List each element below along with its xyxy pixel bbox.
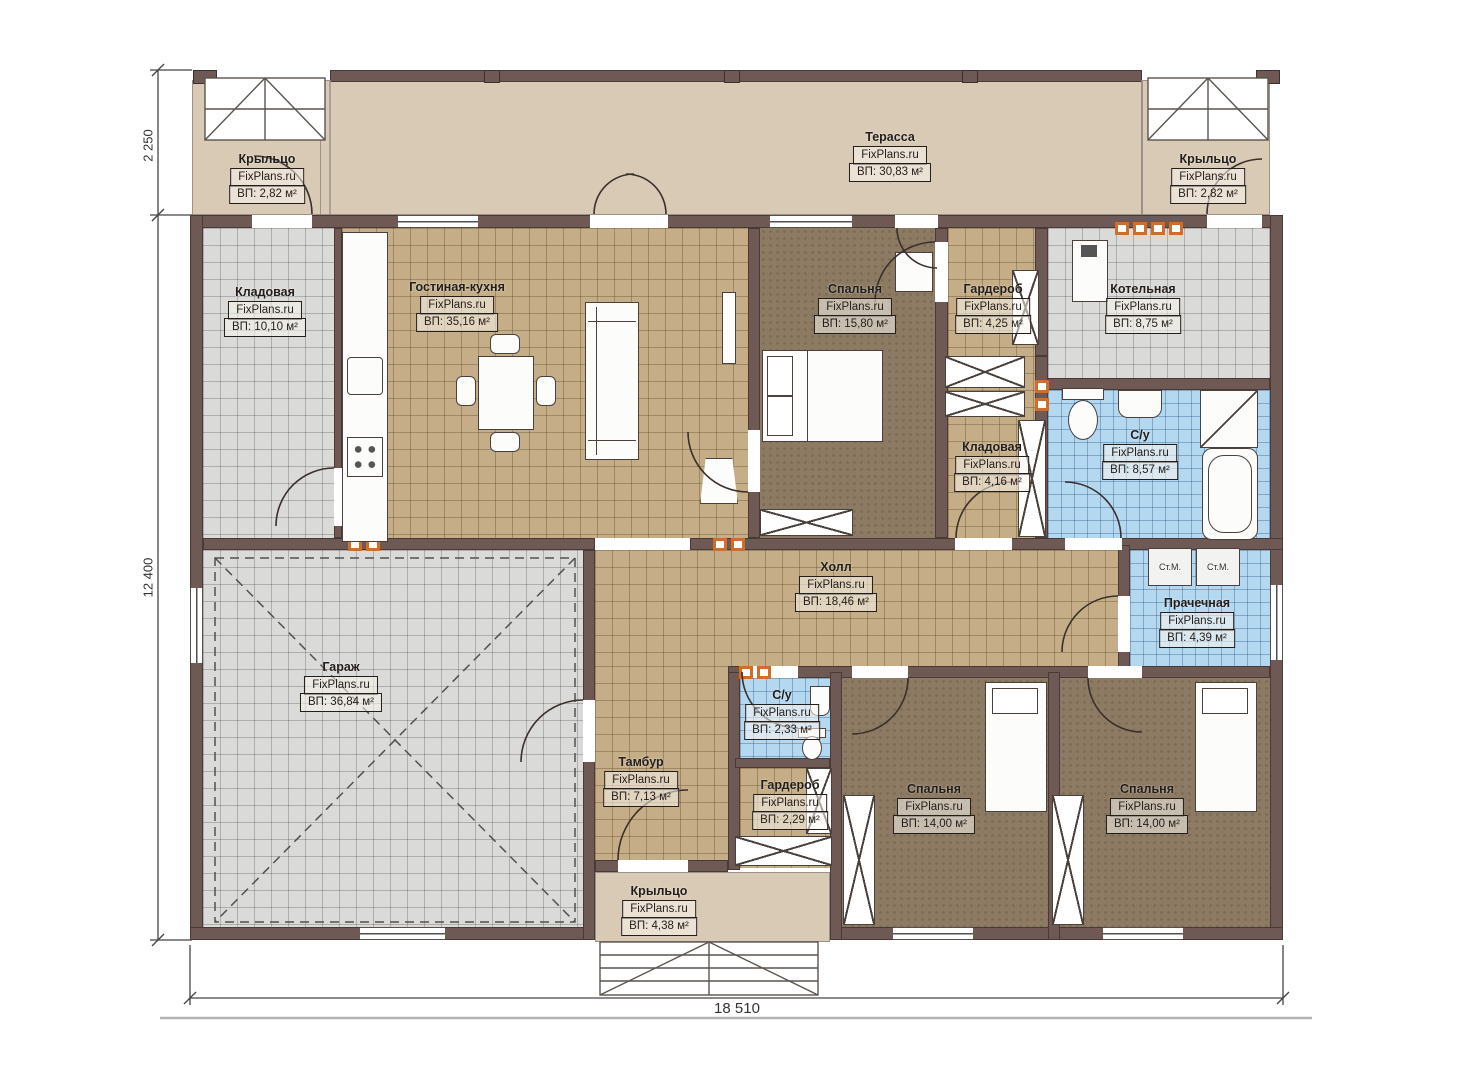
door-opening (895, 215, 938, 228)
vent (713, 538, 727, 551)
door-opening (852, 666, 908, 678)
room-area: ВП: 8,57 м² (1102, 461, 1178, 480)
room-area: ВП: 10,10 м² (224, 318, 306, 337)
room-area: ВП: 30,83 м² (849, 163, 931, 182)
room-label-hall: Холл FixPlans.ru ВП: 18,46 м² (795, 560, 877, 612)
room-area: ВП: 18,46 м² (795, 593, 877, 612)
window (1270, 585, 1283, 660)
room-area: ВП: 4,25 м² (955, 315, 1031, 334)
wall (190, 215, 203, 940)
wall (203, 538, 595, 550)
room-area: ВП: 4,39 м² (1159, 629, 1235, 648)
chair (536, 376, 556, 406)
room-name: С/у (1130, 428, 1149, 442)
terrace-post (724, 70, 740, 83)
room-area: ВП: 7,13 м² (603, 788, 679, 807)
watermark: FixPlans.ru (799, 576, 873, 595)
toilet (1062, 388, 1104, 400)
tv-panel (722, 292, 736, 364)
room-area: ВП: 8,75 м² (1105, 315, 1181, 334)
washing-machine-label: Ст.М. (1159, 562, 1181, 572)
room-label-laundry: Прачечная FixPlans.ru ВП: 4,39 м² (1159, 596, 1235, 648)
toilet-bowl (1068, 400, 1098, 440)
garage-floor (203, 550, 583, 940)
vent (1035, 380, 1049, 393)
vent (731, 538, 745, 551)
terrace-post (962, 70, 978, 83)
room-name: Спальня (828, 282, 882, 296)
room-label-wardrobe-top: Гардероб FixPlans.ru ВП: 4,25 м² (955, 282, 1031, 334)
wardrobe-unit (843, 795, 875, 925)
room-label-bathroom-main: С/у FixPlans.ru ВП: 8,57 м² (1102, 428, 1178, 480)
terrace-floor (320, 80, 1142, 215)
bathtub (1202, 448, 1258, 540)
door-opening (1207, 215, 1262, 228)
room-area: ВП: 14,00 м² (1106, 815, 1188, 834)
door-opening (590, 215, 668, 228)
dimension-height-top: 2 250 (141, 120, 156, 172)
wall (728, 666, 1270, 678)
room-name: Котельная (1110, 282, 1175, 296)
watermark: FixPlans.ru (1103, 444, 1177, 463)
terrace-post (484, 70, 500, 83)
room-name: Крыльцо (631, 884, 688, 898)
door-opening (748, 430, 760, 492)
room-label-bedroom-right: Спальня FixPlans.ru ВП: 14,00 м² (1106, 782, 1188, 834)
sink (1118, 390, 1162, 418)
window (1103, 927, 1183, 940)
room-name: С/у (772, 688, 791, 702)
dimension-height-main: 12 400 (141, 548, 156, 608)
vent (1151, 222, 1165, 235)
sofa (585, 302, 639, 460)
room-name: Прачечная (1164, 596, 1230, 610)
watermark: FixPlans.ru (420, 296, 494, 315)
window (360, 927, 445, 940)
room-label-storeroom-inner: Кладовая FixPlans.ru ВП: 4,16 м² (954, 440, 1030, 492)
room-label-garage: Гараж FixPlans.ru ВП: 36,84 м² (300, 660, 382, 712)
chair (456, 376, 476, 406)
terrace-post (193, 70, 217, 84)
wardrobe-unit (735, 836, 832, 866)
media-stand (700, 458, 738, 504)
watermark: FixPlans.ru (897, 798, 971, 817)
watermark: FixPlans.ru (1106, 298, 1180, 317)
vent (757, 666, 771, 679)
room-name: Спальня (907, 782, 961, 796)
watermark: FixPlans.ru (955, 456, 1029, 475)
window (770, 215, 852, 228)
boiler (1072, 240, 1108, 302)
watermark: FixPlans.ru (228, 301, 302, 320)
vent (1115, 222, 1129, 235)
window (190, 588, 203, 663)
dimension-width-total: 18 510 (700, 1000, 774, 1017)
room-area: ВП: 36,84 м² (300, 693, 382, 712)
stove (347, 437, 383, 477)
room-area: ВП: 2,82 м² (1170, 185, 1246, 204)
watermark: FixPlans.ru (604, 771, 678, 790)
room-area: ВП: 4,38 м² (621, 917, 697, 936)
room-label-living-kitchen: Гостиная-кухня FixPlans.ru ВП: 35,16 м² (409, 280, 505, 332)
vent (739, 666, 753, 679)
bed (762, 350, 883, 442)
terrace-post (1256, 70, 1280, 84)
vent (1133, 222, 1147, 235)
room-label-bedroom-top: Спальня FixPlans.ru ВП: 15,80 м² (814, 282, 896, 334)
washing-machine: Ст.М. (1196, 548, 1240, 586)
watermark: FixPlans.ru (1160, 612, 1234, 631)
room-label-boiler-room: Котельная FixPlans.ru ВП: 8,75 м² (1105, 282, 1181, 334)
room-label-porch-top-left: Крыльцо FixPlans.ru ВП: 2,82 м² (229, 152, 305, 204)
wall (1270, 215, 1283, 940)
room-name: Гостиная-кухня (409, 280, 505, 294)
kitchen-sink (347, 357, 383, 395)
vent (1035, 398, 1049, 411)
wardrobe-unit (945, 356, 1025, 388)
room-area: ВП: 2,29 м² (752, 811, 828, 830)
bed (985, 682, 1047, 812)
wardrobe-unit (760, 509, 853, 536)
wardrobe-unit (1052, 795, 1084, 925)
room-area: ВП: 2,33 м² (744, 721, 820, 740)
door-opening (1118, 596, 1130, 652)
door-opening (1088, 666, 1142, 678)
room-label-bedroom-left: Спальня FixPlans.ru ВП: 14,00 м² (893, 782, 975, 834)
dining-table (478, 356, 534, 430)
watermark: FixPlans.ru (753, 794, 827, 813)
door-opening (935, 242, 948, 302)
room-area: ВП: 15,80 м² (814, 315, 896, 334)
storeroom-left-floor (203, 228, 334, 538)
room-label-porch-top-right: Крыльцо FixPlans.ru ВП: 2,82 м² (1170, 152, 1246, 204)
door-opening (955, 538, 1012, 550)
room-name: Гардероб (760, 778, 819, 792)
watermark: FixPlans.ru (622, 900, 696, 919)
chair (490, 334, 520, 354)
room-name: Холл (820, 560, 851, 574)
room-name: Кладовая (962, 440, 1022, 454)
door-opening (1065, 538, 1122, 550)
window (398, 215, 478, 228)
window (893, 927, 973, 940)
room-name: Тамбур (618, 755, 663, 769)
watermark: FixPlans.ru (745, 704, 819, 723)
room-label-terrace: Терасса FixPlans.ru ВП: 30,83 м² (849, 130, 931, 182)
room-area: ВП: 14,00 м² (893, 815, 975, 834)
room-name: Крыльцо (1180, 152, 1237, 166)
watermark: FixPlans.ru (304, 676, 378, 695)
wardrobe-unit (945, 391, 1025, 417)
wall (735, 758, 830, 768)
room-area: ВП: 4,16 м² (954, 473, 1030, 492)
vent (1169, 222, 1183, 235)
watermark: FixPlans.ru (956, 298, 1030, 317)
watermark: FixPlans.ru (1171, 168, 1245, 187)
room-label-porch-bottom: Крыльцо FixPlans.ru ВП: 4,38 м² (621, 884, 697, 936)
door-opening (334, 468, 342, 526)
room-label-bathroom-small: С/у FixPlans.ru ВП: 2,33 м² (744, 688, 820, 740)
room-label-vestibule: Тамбур FixPlans.ru ВП: 7,13 м² (603, 755, 679, 807)
room-name: Крыльцо (239, 152, 296, 166)
washing-machine: Ст.М. (1148, 548, 1192, 586)
floor-plan: Ст.М. Ст.М. (0, 0, 1473, 1080)
chair (490, 432, 520, 452)
shower (1200, 390, 1258, 448)
room-name: Кладовая (235, 285, 295, 299)
watermark: FixPlans.ru (818, 298, 892, 317)
washing-machine-label: Ст.М. (1207, 562, 1229, 572)
room-name: Гардероб (963, 282, 1022, 296)
watermark: FixPlans.ru (230, 168, 304, 187)
room-label-wardrobe-small: Гардероб FixPlans.ru ВП: 2,29 м² (752, 778, 828, 830)
door-opening (618, 860, 688, 872)
bed (1195, 682, 1257, 812)
room-name: Гараж (322, 660, 359, 674)
room-name: Терасса (865, 130, 915, 144)
room-label-storeroom-left: Кладовая FixPlans.ru ВП: 10,10 м² (224, 285, 306, 337)
room-area: ВП: 2,82 м² (229, 185, 305, 204)
watermark: FixPlans.ru (853, 146, 927, 165)
nightstand (895, 252, 933, 292)
stairs (600, 942, 818, 995)
room-name: Спальня (1120, 782, 1174, 796)
door-opening (252, 215, 312, 228)
room-area: ВП: 35,16 м² (416, 313, 498, 332)
watermark: FixPlans.ru (1110, 798, 1184, 817)
door-opening (583, 700, 595, 762)
